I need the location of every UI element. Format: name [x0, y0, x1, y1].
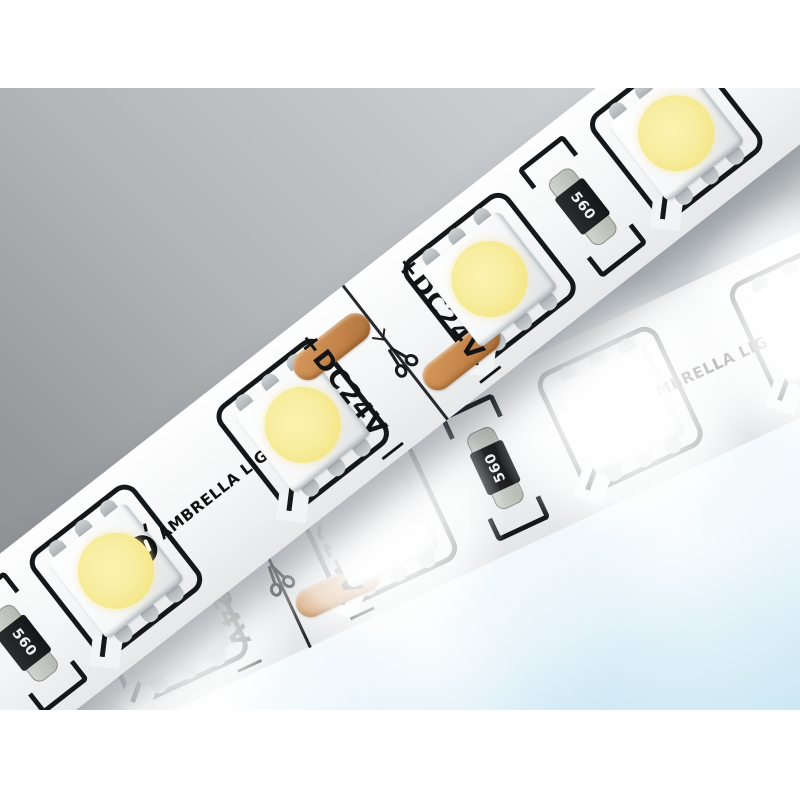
cut-arrow-icon: [372, 327, 385, 340]
resistor-value: 560: [481, 450, 508, 485]
bottom-white-band: [0, 710, 800, 800]
scissors-icon: [378, 336, 429, 387]
led-strip-product-photo: AMBRELLA LIGHT +DC24V: [0, 0, 800, 800]
resistor-value: 560: [8, 626, 40, 660]
photo-area: AMBRELLA LIGHT +DC24V: [0, 88, 800, 710]
top-white-band: [0, 0, 800, 88]
cool-led: [713, 213, 800, 426]
resistor-value: 560: [567, 189, 599, 223]
